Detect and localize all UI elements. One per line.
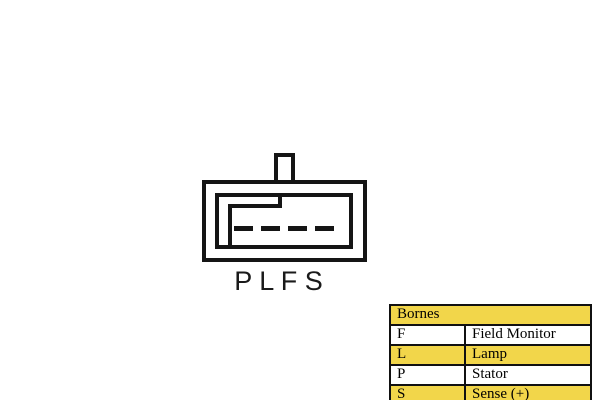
terminal-code-cell: S <box>390 385 465 400</box>
table-row: F Field Monitor <box>390 325 591 345</box>
terminal-desc-cell: Lamp <box>465 345 591 365</box>
terminal-desc-cell: Field Monitor <box>465 325 591 345</box>
pin-dash-p <box>234 226 253 231</box>
pin-labels-text: P L F S <box>196 267 361 295</box>
pin-dash-l <box>261 226 280 231</box>
pin-dash-s <box>315 226 334 231</box>
terminal-code-cell: P <box>390 365 465 385</box>
terminal-desc-cell: Sense (+) <box>465 385 591 400</box>
connector-pins <box>234 226 334 231</box>
table-row: S Sense (+) <box>390 385 591 400</box>
connector-key-step-segment <box>228 204 282 208</box>
table-row: P Stator <box>390 365 591 385</box>
connector-inner-cavity <box>215 193 353 249</box>
terminal-desc-cell: Stator <box>465 365 591 385</box>
table-header-bornes: Bornes <box>390 305 591 325</box>
terminals-table: Bornes F Field Monitor L Lamp P Stator S… <box>389 304 592 400</box>
terminal-code-cell: F <box>390 325 465 345</box>
connector-key-wall-segment <box>228 204 232 245</box>
terminal-code-cell: L <box>390 345 465 365</box>
table-header-row: Bornes <box>390 305 591 325</box>
page: P L F S Bornes F Field Monitor L Lamp P … <box>0 0 600 400</box>
pin-dash-f <box>288 226 307 231</box>
table-row: L Lamp <box>390 345 591 365</box>
